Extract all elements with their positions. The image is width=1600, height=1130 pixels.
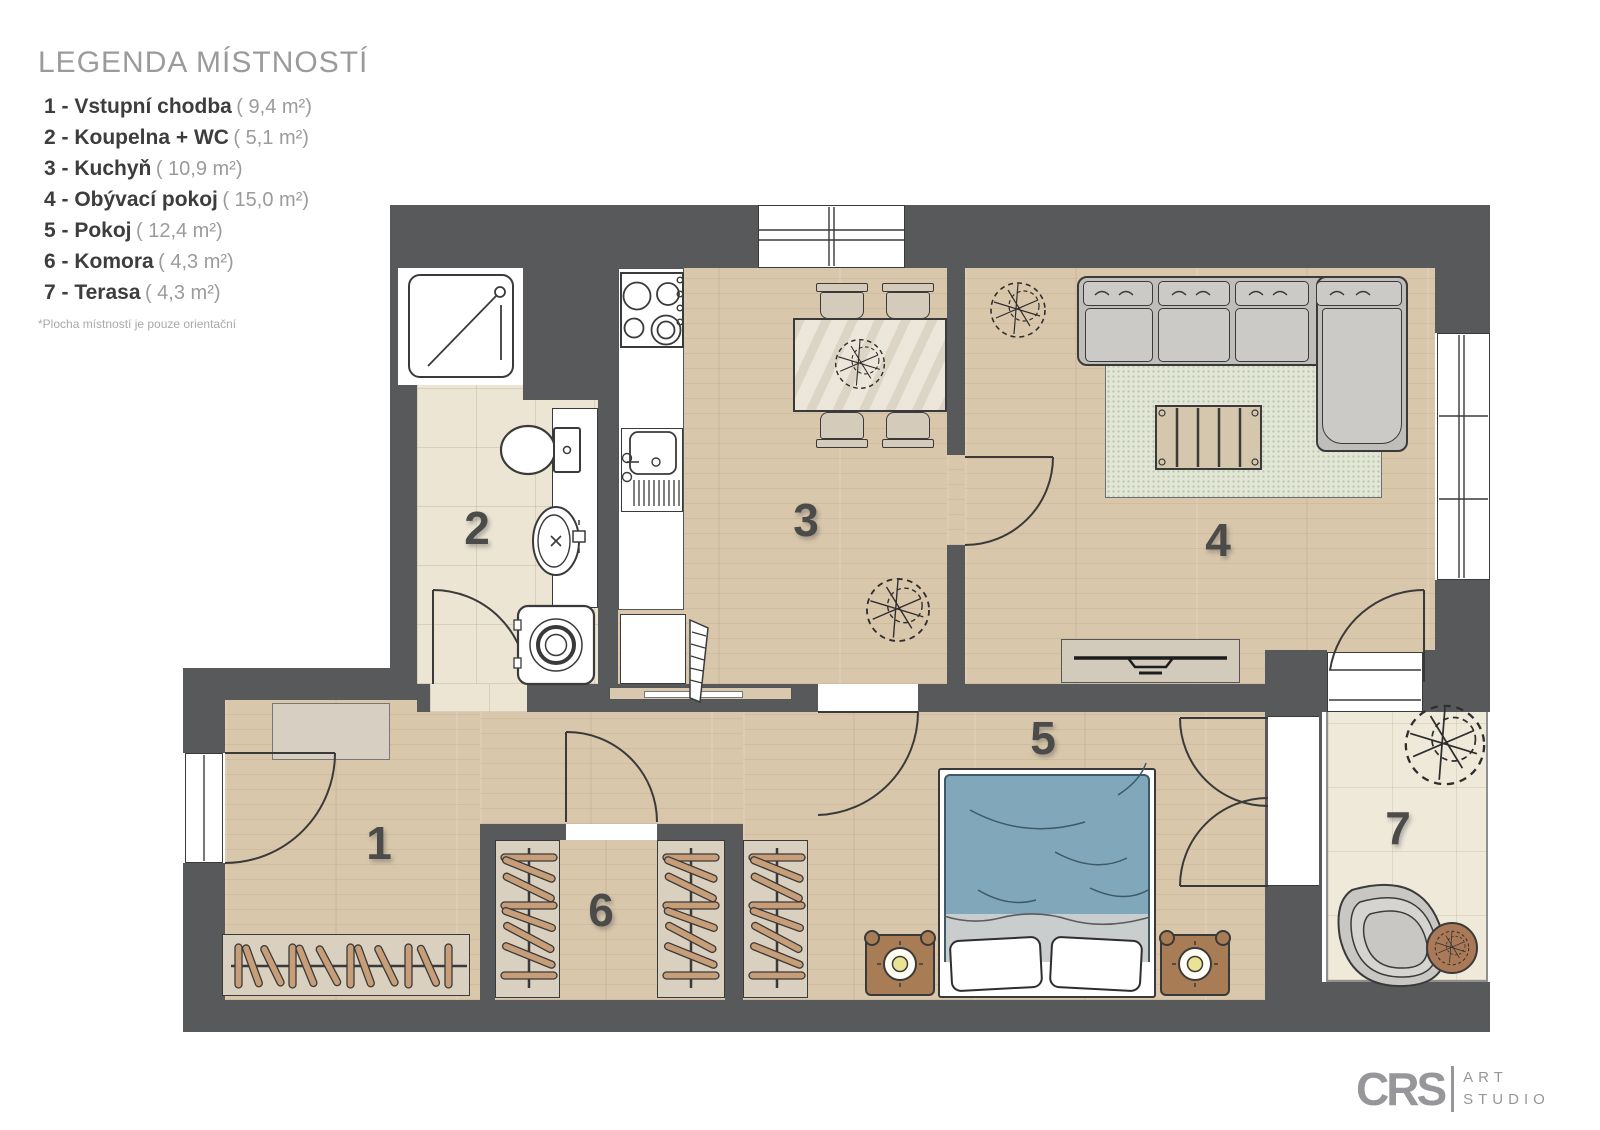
hall-wardrobe <box>222 934 470 996</box>
bed-pillow <box>1049 936 1144 993</box>
bed-pillow <box>949 936 1044 993</box>
wall-hall-top <box>183 668 417 700</box>
dining-chair-seat <box>820 292 864 319</box>
legend-item-area: ( 9,4 m²) <box>236 96 312 118</box>
bedroom-rack <box>743 840 808 998</box>
legend-item: 6 - Komora ( 4,3 m²) <box>44 247 368 278</box>
sofa-seat-cushion <box>1158 308 1230 362</box>
closet-rack <box>495 840 560 998</box>
studio-logo: CRS ART STUDIO <box>1356 1066 1550 1112</box>
closet-rack <box>657 840 725 998</box>
room-label-3: 3 <box>793 493 819 547</box>
wall-mid-d <box>918 684 1265 712</box>
wall-hall-left-upper <box>183 700 225 753</box>
dining-chair-back <box>816 439 868 448</box>
logo-text: ART STUDIO <box>1463 1067 1550 1112</box>
wall-living-terrace-b <box>1423 650 1435 712</box>
logo-line-art: ART <box>1463 1067 1550 1090</box>
nightstand <box>1160 934 1230 996</box>
entrance-door-opening <box>185 753 223 863</box>
wall-room6-top-left <box>480 824 566 840</box>
legend-item-area: ( 4,3 m²) <box>145 282 221 304</box>
floor-kitchen-living-door <box>947 455 965 545</box>
sofa-seat-cushion <box>1085 308 1153 362</box>
wall-kitchen-living-lower <box>947 545 965 684</box>
shower-tray <box>408 274 514 378</box>
dining-chair-seat <box>820 412 864 439</box>
wall-room6-right <box>725 840 743 1000</box>
legend-title: LEGENDA MÍSTNOSTÍ <box>38 46 368 80</box>
logo-divider <box>1451 1066 1454 1112</box>
room-label-1: 1 <box>366 816 392 870</box>
room-label-4: 4 <box>1205 513 1231 567</box>
room-label-5: 5 <box>1030 711 1056 765</box>
floor-corridor <box>480 712 743 824</box>
legend-item: 2 - Koupelna + WC ( 5,1 m²) <box>44 123 368 154</box>
room-label-2: 2 <box>464 501 490 555</box>
legend-item-label: 7 - Terasa <box>44 281 141 304</box>
legend-item: 1 - Vstupní chodba ( 9,4 m²) <box>44 92 368 123</box>
legend-item-label: 6 - Komora <box>44 250 154 273</box>
living-window <box>1437 333 1490 580</box>
legend-item: 7 - Terasa ( 4,3 m²) <box>44 278 368 309</box>
wall-kitchen-living-upper <box>947 268 965 455</box>
legend-item-area: ( 5,1 m²) <box>233 127 309 149</box>
legend-item-label: 1 - Vstupní chodba <box>44 95 232 118</box>
bar-counter-slit <box>644 691 743 698</box>
wall-mid-a <box>417 684 430 712</box>
french-door-opening <box>1268 716 1319 886</box>
legend-item-label: 3 - Kuchyň <box>44 157 151 180</box>
sofa-back-cushion <box>1158 281 1230 306</box>
logo-line-studio: STUDIO <box>1463 1089 1550 1112</box>
wall-room6-top-right <box>657 824 743 840</box>
wall-top-right <box>905 205 1490 268</box>
kitchen-base-cabinet <box>620 614 686 684</box>
dining-table <box>793 318 947 412</box>
dining-chair-seat <box>886 292 930 319</box>
wall-living-terrace-a <box>1265 650 1327 712</box>
floor-plan-page: { "legend": { "title": "LEGENDA MÍSTNOST… <box>0 0 1600 1130</box>
coffee-table <box>1155 405 1262 470</box>
sofa-back-cushion <box>1316 281 1402 306</box>
legend-item-area: ( 4,3 m²) <box>158 251 234 273</box>
wall-bottom-terrace <box>1322 982 1490 1032</box>
bed-blanket <box>944 774 1150 926</box>
legend-item: 5 - Pokoj ( 12,4 m²) <box>44 216 368 247</box>
logo-abbr: CRS <box>1356 1066 1444 1112</box>
sofa-back-cushion <box>1235 281 1309 306</box>
legend-item-area: ( 12,4 m²) <box>136 220 223 242</box>
tv-sideboard <box>1061 639 1240 683</box>
kitchen-sink-unit <box>621 428 683 512</box>
sofa-chaise-cushion <box>1322 308 1402 444</box>
doormat <box>272 703 390 760</box>
floor-bathroom-door <box>430 684 527 712</box>
wall-top-left <box>390 205 758 268</box>
wall-mid-b <box>527 684 593 712</box>
kitchen-window <box>758 205 905 268</box>
legend: LEGENDA MÍSTNOSTÍ 1 - Vstupní chodba ( 9… <box>38 46 368 331</box>
legend-item: 4 - Obývací pokoj ( 15,0 m²) <box>44 185 368 216</box>
wall-bottom <box>183 1000 1322 1032</box>
legend-items: 1 - Vstupní chodba ( 9,4 m²) 2 - Koupeln… <box>38 92 368 309</box>
dining-chair-back <box>882 439 934 448</box>
wall-right-lower <box>1435 580 1490 712</box>
terrace-door-opening <box>1327 652 1423 712</box>
dining-chair-back <box>816 283 868 292</box>
legend-note: *Plocha místností je pouze orientační <box>38 317 368 331</box>
wall-right-upper <box>1435 268 1490 333</box>
sofa-seat-cushion <box>1235 308 1309 362</box>
room-label-7: 7 <box>1385 801 1411 855</box>
legend-item-area: ( 10,9 m²) <box>156 158 243 180</box>
cooktop <box>620 272 684 348</box>
nightstand <box>865 934 935 996</box>
dining-chair-seat <box>886 412 930 439</box>
bath-vanity <box>552 408 598 608</box>
kitchen-bar-counter <box>609 687 792 700</box>
wall-bath-kitchen <box>598 400 618 684</box>
legend-item-label: 5 - Pokoj <box>44 219 132 242</box>
wall-room6-left <box>480 840 495 1000</box>
legend-item-label: 4 - Obývací pokoj <box>44 188 218 211</box>
legend-item-area: ( 15,0 m²) <box>222 189 309 211</box>
legend-item-label: 2 - Koupelna + WC <box>44 126 229 149</box>
dining-chair-back <box>882 283 934 292</box>
legend-item: 3 - Kuchyň ( 10,9 m²) <box>44 154 368 185</box>
room-label-6: 6 <box>588 883 614 937</box>
sofa-back-cushion <box>1083 281 1153 306</box>
wall-bath-nook <box>523 268 618 400</box>
